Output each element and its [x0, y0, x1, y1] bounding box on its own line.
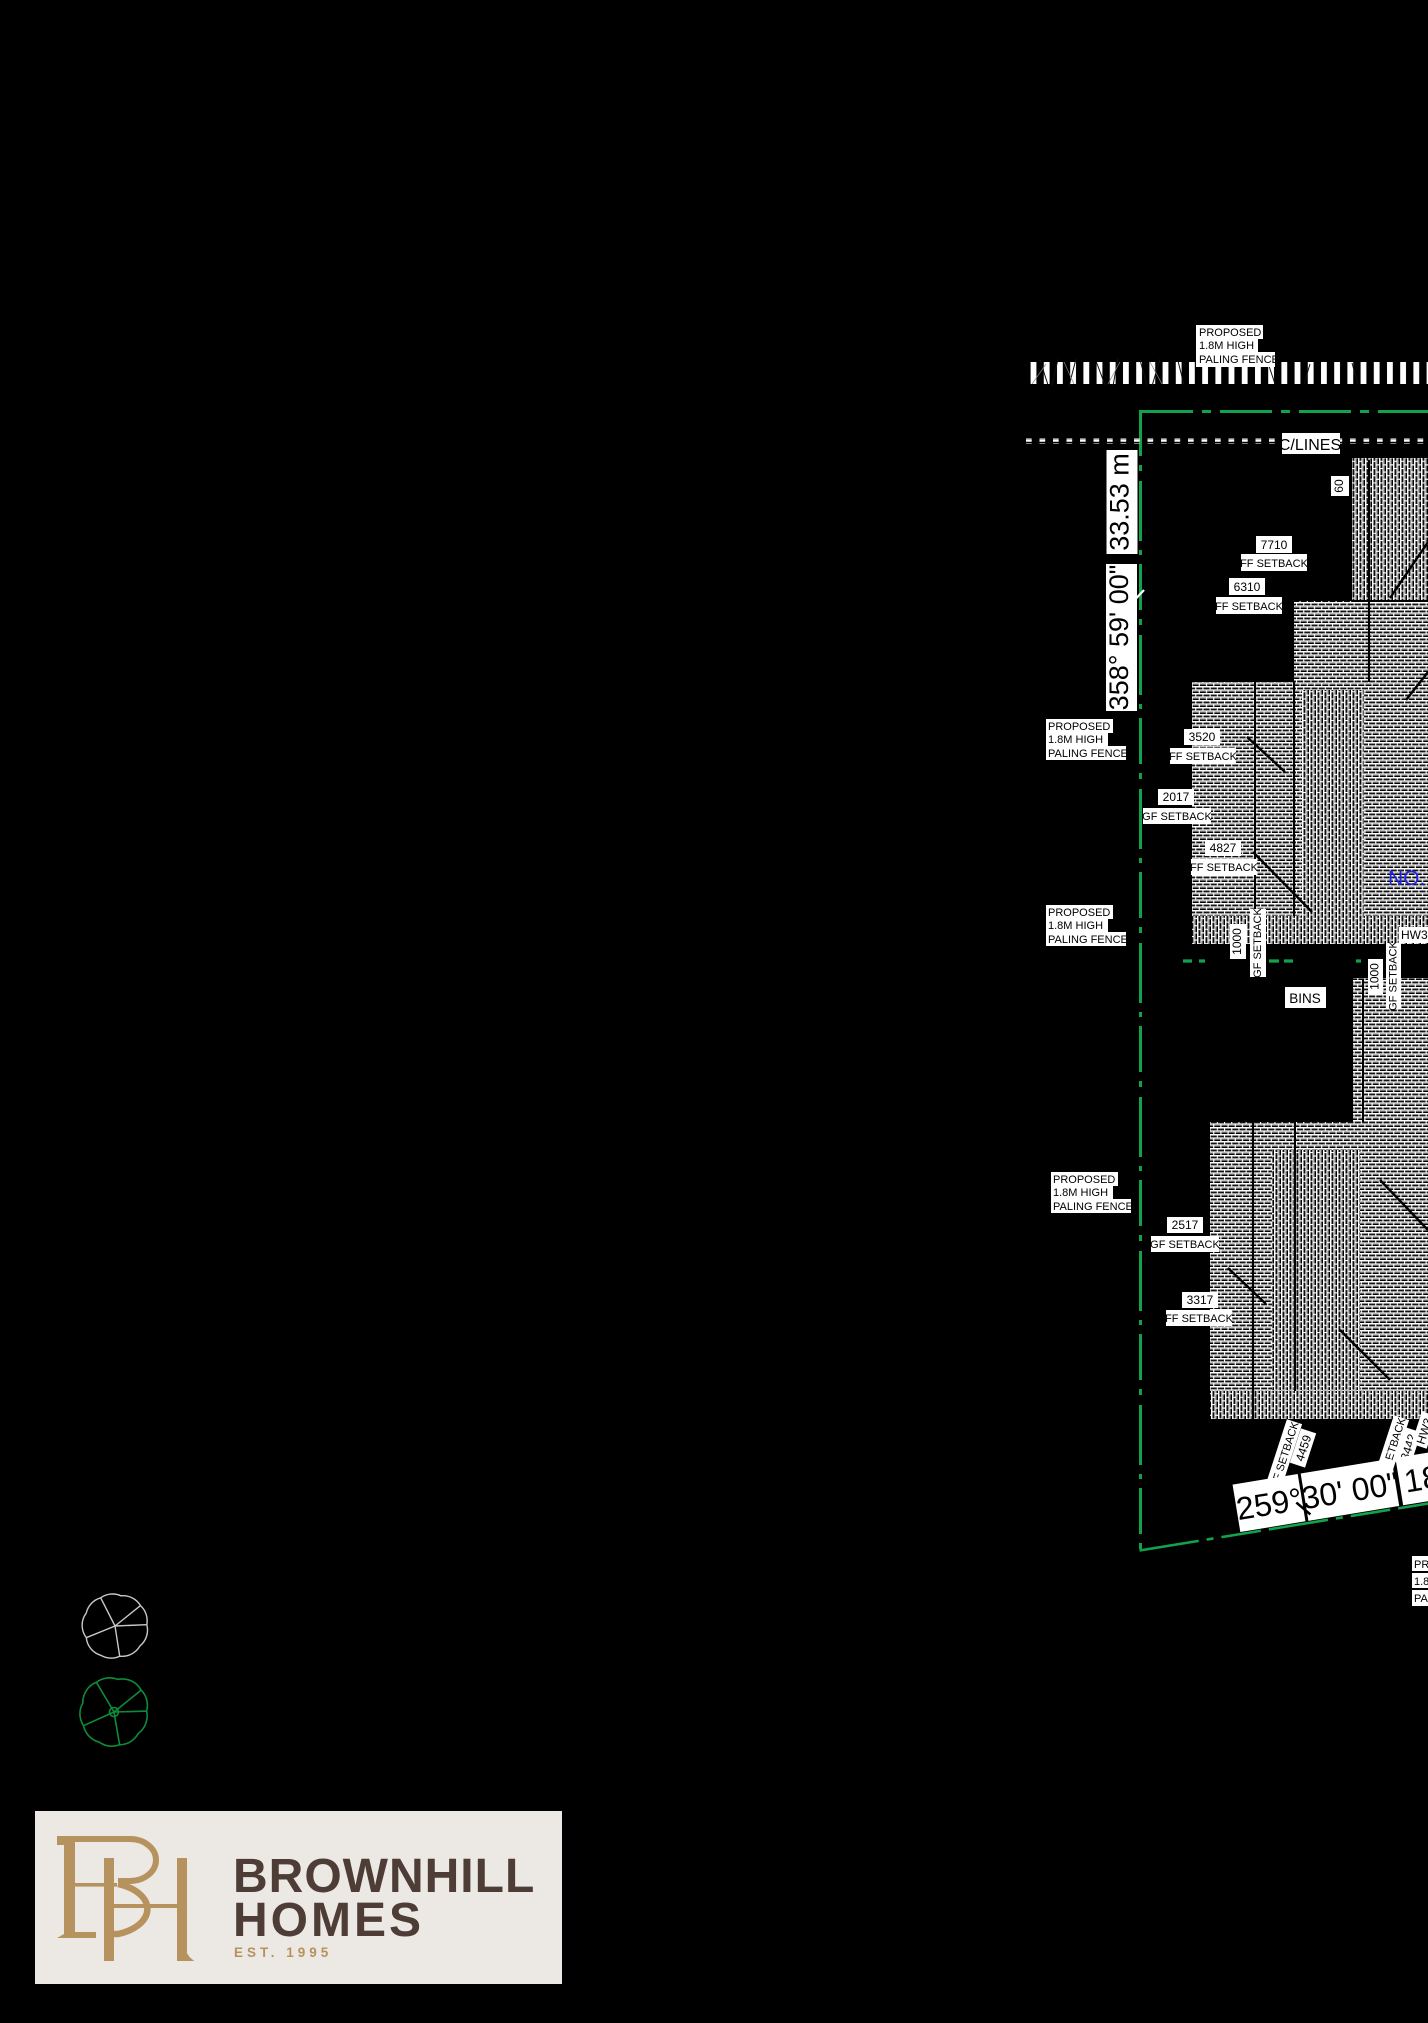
svg-text:1.8M HIGH: 1.8M HIGH [1199, 340, 1254, 352]
svg-text:HOMES: HOMES [233, 1894, 424, 1947]
svg-text:HW3: HW3 [1401, 928, 1428, 942]
svg-text:PALING FENCE: PALING FENCE [1053, 1201, 1133, 1213]
svg-text:EST. 1995: EST. 1995 [234, 1945, 332, 1960]
svg-text:1.8M HIGH: 1.8M HIGH [1048, 920, 1103, 932]
svg-text:7710: 7710 [1261, 538, 1288, 552]
svg-text:60: 60 [1332, 479, 1346, 493]
svg-text:FF SETBACK: FF SETBACK [1190, 862, 1259, 874]
svg-text:3520: 3520 [1189, 730, 1216, 744]
svg-text:1.8M HIGH: 1.8M HIGH [1414, 1576, 1428, 1588]
svg-text:PALING FENCE: PALING FENCE [1048, 748, 1128, 760]
svg-text:C/LINES: C/LINES [1279, 437, 1341, 454]
svg-text:PROPOSED: PROPOSED [1414, 1559, 1428, 1571]
svg-text:1000: 1000 [1230, 928, 1244, 955]
svg-text:FF SETBACK: FF SETBACK [1165, 1313, 1234, 1325]
svg-text:FF SETBACK: FF SETBACK [1215, 601, 1284, 613]
svg-text:2517: 2517 [1172, 1218, 1199, 1232]
svg-text:FF SETBACK: FF SETBACK [1169, 751, 1238, 763]
svg-text:NO.: NO. [1388, 867, 1425, 890]
svg-text:1.8M HIGH: 1.8M HIGH [1053, 1187, 1108, 1199]
svg-text:PROPOSED: PROPOSED [1053, 1174, 1115, 1186]
svg-text:3317: 3317 [1187, 1293, 1214, 1307]
svg-text:PROPOSED: PROPOSED [1048, 907, 1110, 919]
svg-text:PALING FENCE: PALING FENCE [1414, 1593, 1428, 1605]
svg-text:358° 59' 00": 358° 59' 00" [1104, 565, 1134, 711]
svg-text:6310: 6310 [1234, 580, 1261, 594]
svg-text:1.8M HIGH: 1.8M HIGH [1048, 734, 1103, 746]
svg-text:PROPOSED: PROPOSED [1048, 721, 1110, 733]
svg-text:FF SETBACK: FF SETBACK [1240, 558, 1309, 570]
svg-text:4827: 4827 [1210, 841, 1237, 855]
svg-text:PROPOSED: PROPOSED [1199, 327, 1261, 339]
svg-text:GF SETBACK: GF SETBACK [1150, 1239, 1220, 1251]
svg-text:2017: 2017 [1163, 790, 1190, 804]
svg-text:PALING FENCE: PALING FENCE [1199, 354, 1279, 366]
svg-text:33.53 m: 33.53 m [1105, 453, 1135, 551]
svg-text:GF SETBACK: GF SETBACK [1252, 908, 1264, 978]
svg-text:GF SETBACK: GF SETBACK [1142, 811, 1212, 823]
svg-text:1000: 1000 [1368, 963, 1382, 990]
svg-text:GF SETBACK: GF SETBACK [1387, 941, 1399, 1011]
svg-text:BINS: BINS [1289, 991, 1321, 1006]
svg-text:PALING FENCE: PALING FENCE [1048, 934, 1128, 946]
